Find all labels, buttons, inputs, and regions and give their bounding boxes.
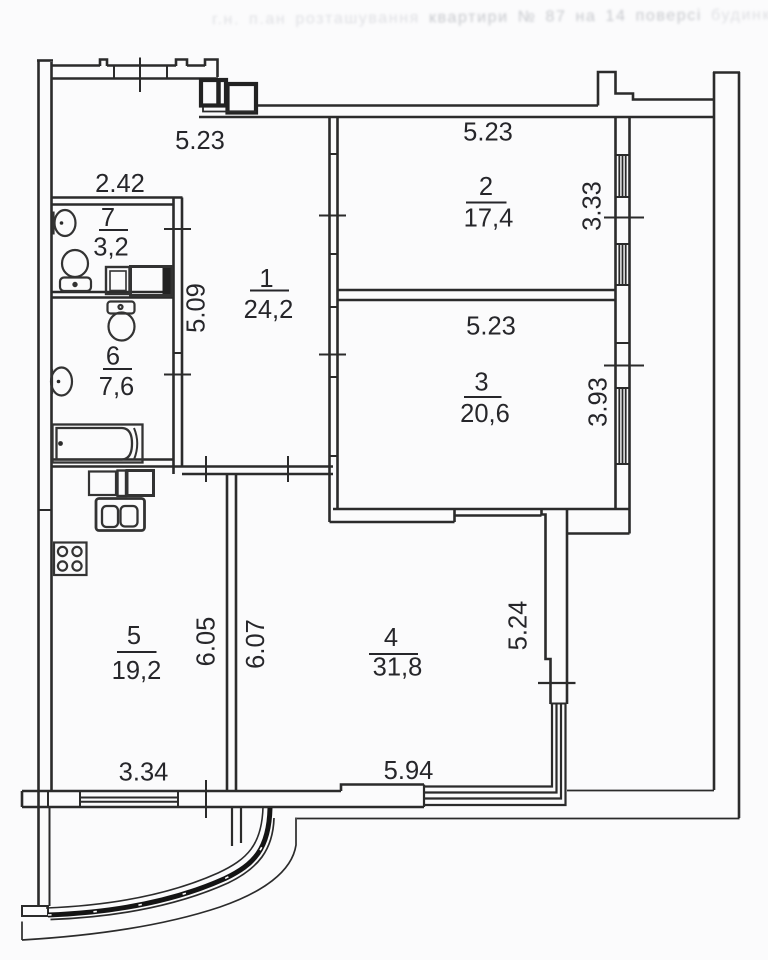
svg-text:3.34: 3.34 xyxy=(119,759,169,787)
svg-text:19,2: 19,2 xyxy=(112,657,162,685)
svg-text:1: 1 xyxy=(259,265,273,293)
svg-text:7,6: 7,6 xyxy=(99,373,134,401)
svg-text:17,4: 17,4 xyxy=(464,205,514,233)
svg-text:5: 5 xyxy=(127,622,141,650)
svg-text:20,6: 20,6 xyxy=(460,400,510,428)
svg-text:2: 2 xyxy=(479,173,493,201)
svg-text:5.09: 5.09 xyxy=(183,283,211,333)
svg-text:6.07: 6.07 xyxy=(242,619,270,669)
svg-text:3,2: 3,2 xyxy=(93,234,128,262)
svg-text:4: 4 xyxy=(384,624,398,652)
svg-text:3.93: 3.93 xyxy=(585,377,613,427)
svg-text:5.24: 5.24 xyxy=(505,601,533,651)
svg-text:7: 7 xyxy=(101,204,115,232)
svg-text:5.23: 5.23 xyxy=(466,313,516,341)
svg-text:31,8: 31,8 xyxy=(373,654,423,682)
svg-text:6.05: 6.05 xyxy=(193,617,221,667)
svg-text:5.23: 5.23 xyxy=(463,119,513,147)
svg-text:6: 6 xyxy=(106,343,120,371)
svg-text:2.42: 2.42 xyxy=(95,170,145,198)
svg-text:3.33: 3.33 xyxy=(579,181,607,231)
svg-text:24,2: 24,2 xyxy=(244,296,294,324)
svg-text:5.94: 5.94 xyxy=(384,757,434,785)
svg-text:3: 3 xyxy=(474,369,488,397)
svg-text:5.23: 5.23 xyxy=(175,127,225,155)
